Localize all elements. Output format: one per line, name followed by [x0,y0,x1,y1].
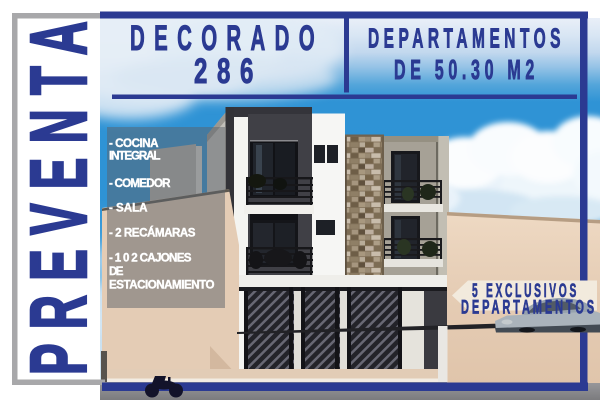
svg-text:DEPARTAMENTOS: DEPARTAMENTOS [368,23,565,54]
svg-text:PREVENTA: PREVENTA [14,7,103,375]
svg-text:ESTACIONAMIENTO: ESTACIONAMIENTO [109,279,216,292]
svg-text:DE: DE [109,265,125,278]
svg-text:- COMEDOR: - COMEDOR [109,177,172,190]
svg-text:286: 286 [194,52,263,91]
svg-text:DEPARTAMENTOS: DEPARTAMENTOS [461,298,597,319]
svg-text:INTEGRAL: INTEGRAL [109,150,162,163]
svg-text:- 2 RECÁMARAS: - 2 RECÁMARAS [109,227,197,240]
svg-text:- 1 0 2 CAJONES: - 1 0 2 CAJONES [109,252,193,265]
svg-text:DE 50.30 M2: DE 50.30 M2 [394,54,539,85]
svg-text:- SALA: - SALA [109,202,149,215]
svg-text:- COCINA: - COCINA [109,137,160,150]
